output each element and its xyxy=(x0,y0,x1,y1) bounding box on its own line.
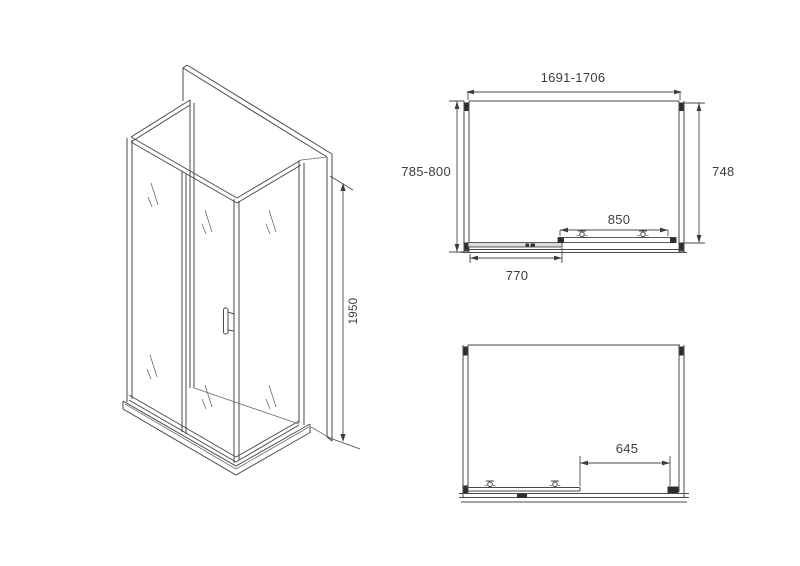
plan-opening-width-dimension: 770 xyxy=(470,248,562,283)
height-dimension-label: 1950 xyxy=(348,298,360,325)
front-door-travel-label: 645 xyxy=(616,441,639,456)
plan-sliding-door-bar xyxy=(558,238,677,244)
plan-door-width-dimension: 850 xyxy=(560,212,668,236)
shower-tray xyxy=(123,401,332,475)
glass-hatch-marks xyxy=(147,183,276,409)
front-door-rollers xyxy=(483,481,562,488)
shower-enclosure-drawing: 1950 xyxy=(0,0,800,566)
front-wall-profile-left xyxy=(463,345,468,497)
plan-wall-profile-right xyxy=(679,101,684,252)
plan-door-width-label: 850 xyxy=(608,212,631,227)
front-sliding-door-rail xyxy=(467,488,580,499)
front-base-tray xyxy=(459,494,689,503)
door-handle xyxy=(224,308,235,334)
back-wall-panel xyxy=(183,65,332,441)
plan-depth-right-dimension: 748 xyxy=(684,103,735,243)
plan-depth-left-label: 785-800 xyxy=(401,164,451,179)
iso-view: 1950 xyxy=(123,65,360,475)
plan-view: 1691-1706 785-800 748 850 770 xyxy=(401,70,734,283)
front-view: 645 xyxy=(459,345,689,502)
plan-bottom-track xyxy=(461,250,687,253)
plan-opening-width-label: 770 xyxy=(506,268,529,283)
plan-width-dimension: 1691-1706 xyxy=(466,70,682,100)
plan-wall-profile-left xyxy=(464,101,469,252)
plan-width-label: 1691-1706 xyxy=(541,70,606,85)
top-rails xyxy=(131,100,327,203)
plan-depth-right-label: 748 xyxy=(712,164,735,179)
front-door-travel-dimension: 645 xyxy=(580,441,670,486)
plan-fixed-panel-bar xyxy=(468,243,562,248)
plan-door-rollers xyxy=(575,231,650,238)
plan-depth-left-dimension: 785-800 xyxy=(401,101,464,252)
technical-drawing-canvas: 1950 xyxy=(0,0,800,566)
